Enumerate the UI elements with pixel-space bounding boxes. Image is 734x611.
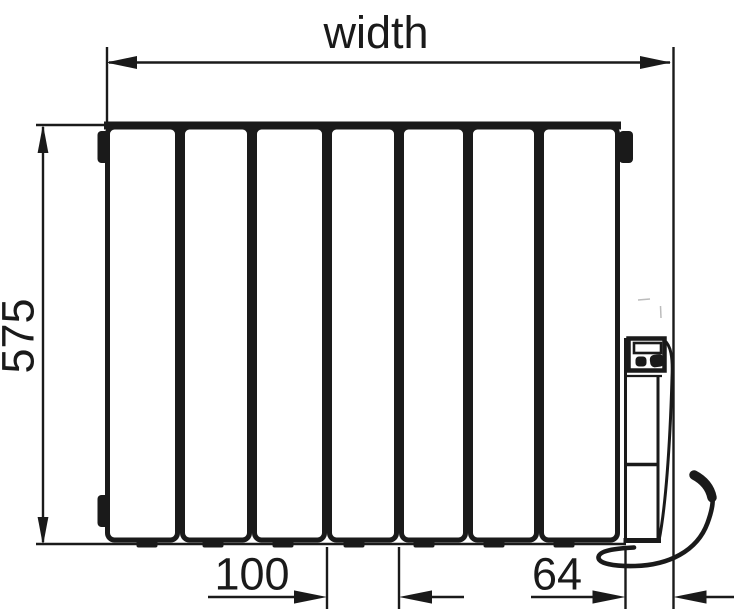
foot-tab (344, 540, 365, 548)
faint-seam-mark (638, 299, 650, 300)
foot-tab (137, 540, 158, 548)
foot-tab (554, 540, 575, 548)
section-pitch-label: 100 (214, 549, 289, 600)
height-dimension-label: 575 (0, 298, 44, 373)
cable-plug-end (694, 475, 712, 498)
foot-tab (414, 540, 435, 548)
control-button-left (636, 357, 647, 367)
mounting-bracket-top-right (619, 131, 633, 163)
arrowhead-left-icon (399, 590, 432, 603)
foot-tab (203, 540, 224, 548)
radiator-section (255, 127, 325, 540)
radiator-section (402, 127, 466, 540)
arrowhead-right-icon (294, 590, 327, 603)
faint-seam-mark (661, 306, 662, 318)
display-screen (634, 343, 661, 353)
radiator-section (471, 127, 537, 540)
arrowhead-right-icon (640, 56, 671, 69)
mounting-bracket-bottom-left (98, 495, 111, 527)
control-panel (624, 299, 673, 541)
arrowhead-up-icon (38, 125, 49, 154)
arrowhead-right-icon (593, 590, 626, 603)
radiator-body (98, 126, 634, 548)
width-dimension-label: width (322, 7, 428, 58)
dimension-control-width: 64 (531, 547, 734, 609)
arrowhead-left-icon (674, 590, 707, 603)
arrowhead-left-icon (106, 56, 137, 69)
dimension-section-pitch: 100 (208, 547, 464, 609)
radiator-technical-drawing: width 575 (0, 0, 734, 611)
radiator-section (542, 127, 618, 540)
foot-tab (273, 540, 294, 548)
radiator-section (108, 127, 178, 540)
radiator-section (330, 127, 397, 540)
control-width-label: 64 (532, 549, 582, 600)
arrowhead-down-icon (38, 517, 49, 546)
mounting-bracket-top-left (98, 131, 111, 163)
radiator-section (183, 127, 250, 540)
foot-tab (484, 540, 505, 548)
